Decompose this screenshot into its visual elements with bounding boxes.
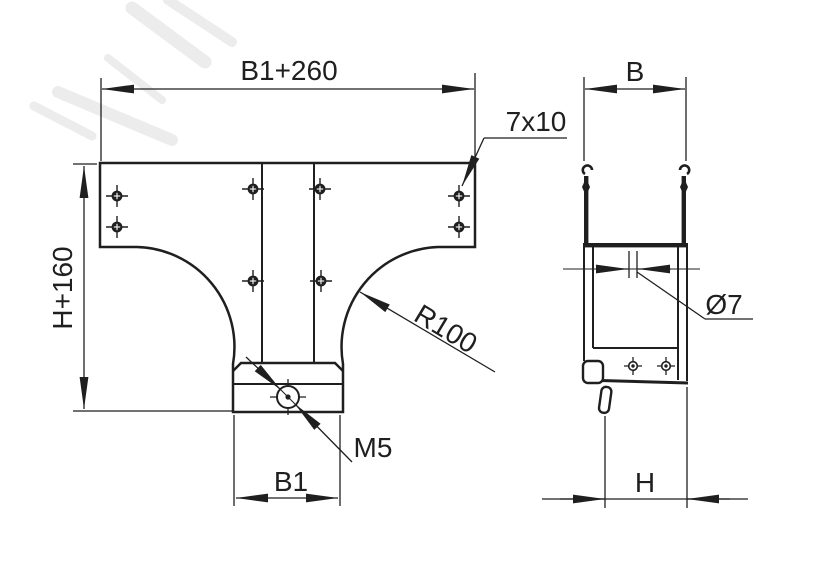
callout-label-m5: M5 [354, 432, 393, 463]
callout-r100: R100 [360, 292, 495, 372]
channel-back [583, 243, 688, 247]
hole-marker [624, 357, 642, 375]
dim-label-b1-plus-260: B1+260 [240, 55, 337, 86]
side-view: B [542, 56, 753, 508]
hook-left [583, 165, 592, 174]
hook-right [680, 165, 689, 174]
dim-label-b1: B1 [274, 466, 308, 497]
dim-h: H [542, 387, 748, 508]
technical-drawing: B1+260 H+160 7x10 R100 M5 [0, 0, 813, 569]
side-holes [624, 357, 675, 375]
technical-drawing-page: B1+260 H+160 7x10 R100 M5 [0, 0, 813, 569]
callout-label-r100: R100 [409, 298, 482, 359]
foot-and-tab [583, 361, 612, 413]
watermark [34, 0, 232, 140]
hole-marker [657, 357, 675, 375]
callout-label-d7: Ø7 [705, 289, 742, 320]
dim-b1: B1 [234, 415, 340, 506]
dim-b: B [585, 56, 685, 89]
plate-outline [100, 163, 475, 412]
dim-b1-plus-260: B1+260 [101, 55, 475, 161]
dim-label-h: H [635, 467, 655, 498]
dim-label-b: B [626, 56, 645, 87]
callout-d7: Ø7 [637, 272, 753, 320]
foot-clip [583, 361, 603, 383]
callout-label-7x10: 7x10 [506, 106, 567, 137]
profile-rails [582, 165, 689, 247]
callout-7x10: 7x10 [462, 106, 567, 186]
dim-label-h-plus-160: H+160 [47, 246, 78, 329]
hanging-tab [598, 386, 612, 413]
